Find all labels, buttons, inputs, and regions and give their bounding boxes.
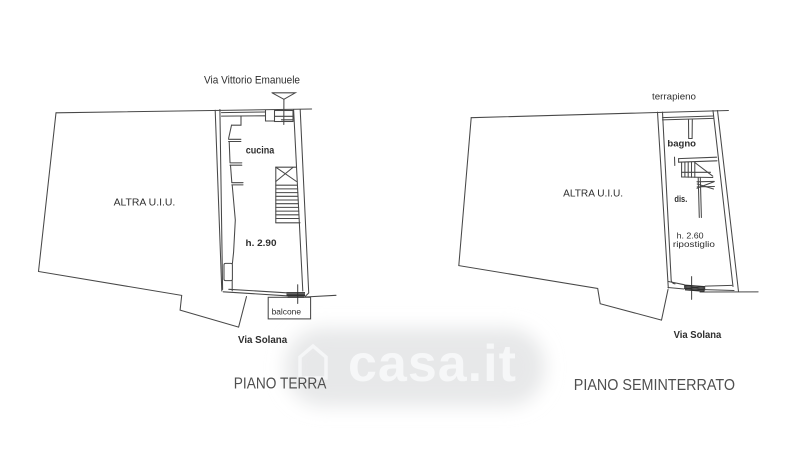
svg-text:Via Solana: Via Solana (238, 335, 288, 346)
svg-text:ALTRA U.I.U.: ALTRA U.I.U. (114, 197, 176, 208)
svg-text:dis.: dis. (674, 194, 687, 204)
svg-text:PIANO SEMINTERRATO: PIANO SEMINTERRATO (574, 377, 735, 394)
svg-text:bagno: bagno (667, 139, 696, 149)
svg-text:terrapieno: terrapieno (652, 91, 696, 101)
svg-text:ALTRA U.I.U.: ALTRA U.I.U. (563, 189, 623, 200)
svg-text:PIANO TERRA: PIANO TERRA (234, 375, 327, 392)
svg-text:Via Solana: Via Solana (674, 330, 722, 341)
svg-text:balcone: balcone (272, 308, 302, 317)
svg-text:ripostiglio: ripostiglio (673, 239, 715, 249)
svg-text:cucina: cucina (246, 146, 275, 157)
svg-text:Via Vittorio Emanuele: Via Vittorio Emanuele (204, 75, 300, 87)
svg-text:h. 2.90: h. 2.90 (246, 238, 277, 249)
svg-text:casa.it: casa.it (348, 335, 517, 393)
